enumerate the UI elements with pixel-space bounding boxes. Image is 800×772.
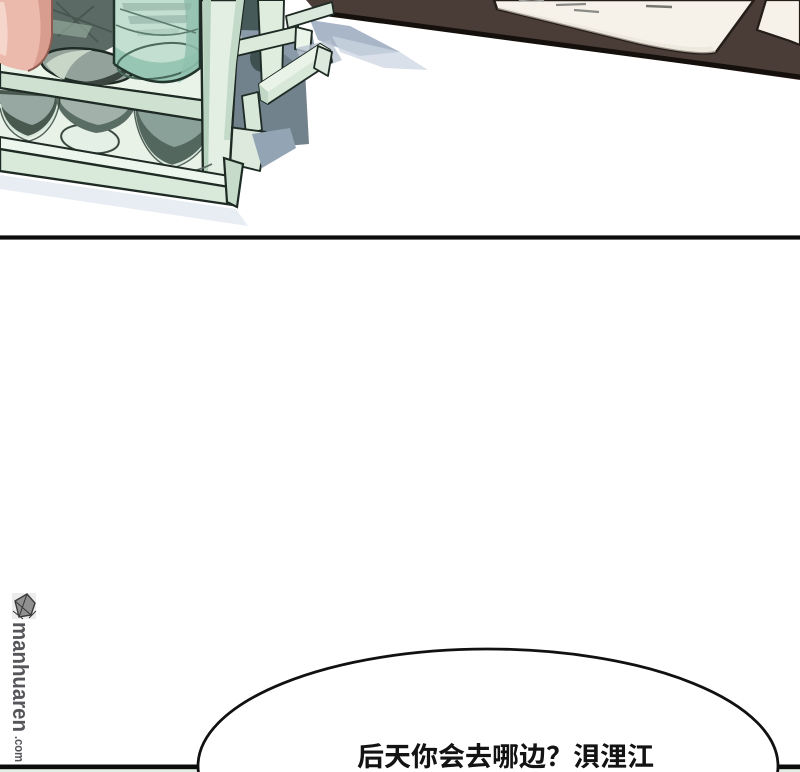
svg-text:manhuaren: manhuaren [8,622,33,732]
svg-text:.com: .com [12,736,27,762]
